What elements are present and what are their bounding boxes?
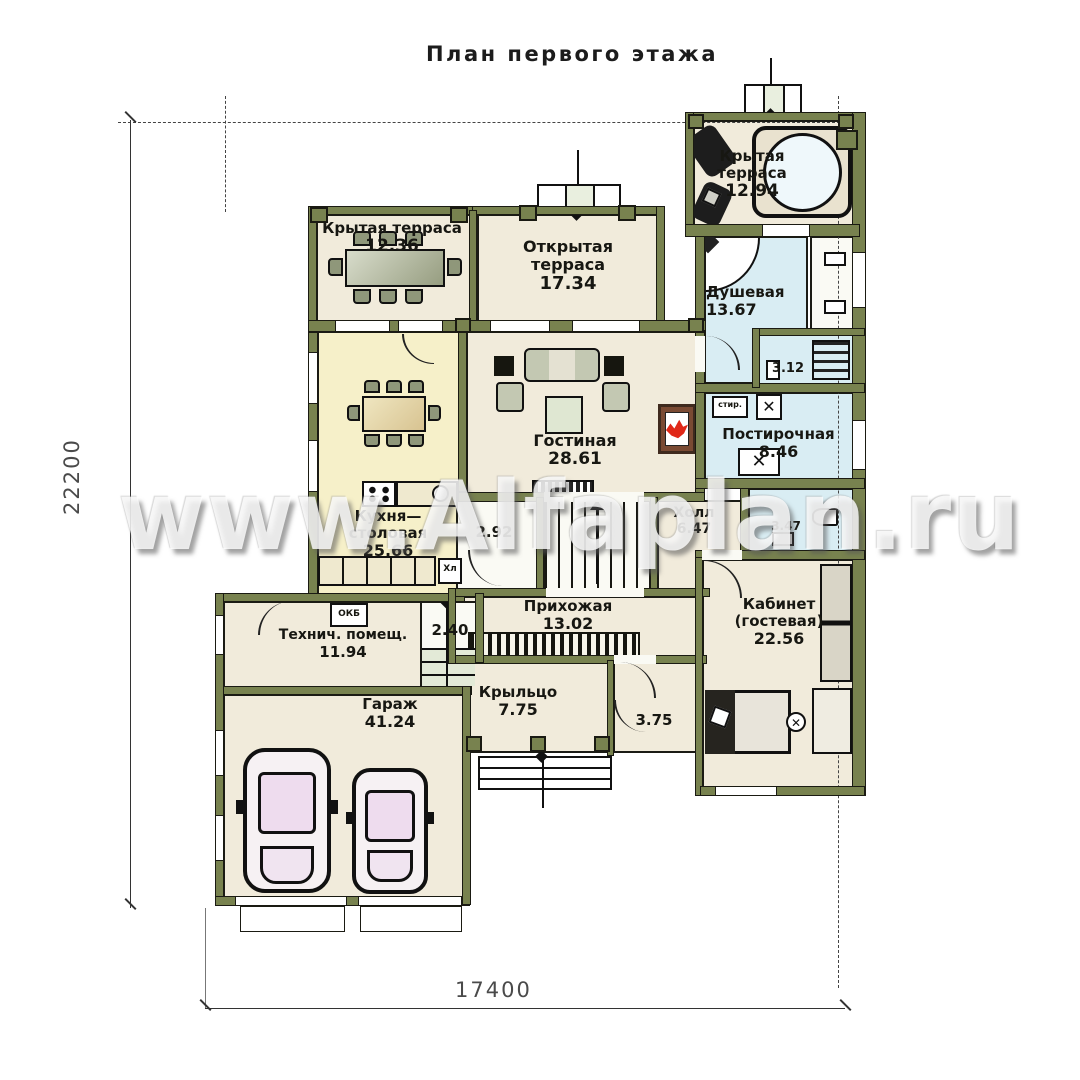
wall-segment [215,686,472,695]
step-axis [770,58,772,84]
room-label-vestibule: 3.75 [626,712,682,729]
chair [353,289,371,304]
washer-label: стир. [712,400,748,409]
door-opening [695,336,705,372]
chair [408,380,424,393]
side-table [494,356,514,376]
wall-segment [695,557,703,796]
chair [428,405,441,421]
watermark: www.Alfaplan.ru [118,462,1021,572]
room-label-laundry: Постирочная 8.46 [706,426,851,461]
page-title: План первого этажа [392,42,752,66]
pier [466,736,482,752]
car-roof [365,790,415,842]
car-mirror [427,812,434,824]
room-label-shower: Душевая 13.67 [700,284,798,319]
room-label-open-terrace: Открытая терраса 17.34 [512,238,624,294]
wardrobe [468,632,640,657]
wall-segment [469,210,477,322]
chimney-block [836,130,858,150]
chair [364,434,380,447]
armchair [602,382,630,412]
armchair [496,382,524,412]
room-label-entry: Прихожая 13.02 [508,598,628,633]
pier [618,205,636,221]
porch-steps [478,756,612,790]
chair [364,380,380,393]
window [308,352,318,404]
window [572,320,640,332]
window [215,815,224,861]
room-label-terrace-tl: Крытая терраса 12.36 [322,220,462,256]
dimension-line-bottom [205,1008,845,1009]
pier [688,318,704,333]
room-shower-lobby [810,236,854,330]
car-hood [260,846,314,884]
step-axis [577,150,579,184]
room-label-porch: Крыльцо 7.75 [470,684,566,719]
coffee-table [545,396,583,434]
door-opening [762,224,810,237]
dimension-tick [839,999,851,1011]
garage-door [235,896,347,906]
entry-steps [744,84,802,114]
floor-plan-canvas: План первого этажа 22200 17400 [0,0,1080,1080]
side-table [604,356,624,376]
chair [408,434,424,447]
dimension-label-bottom: 17400 [455,978,532,1002]
pier [838,114,854,129]
axis-line-top [118,122,840,123]
axis-line-vertical [225,96,226,212]
car-mirror [330,800,338,814]
desk-chair: ✕ [786,712,806,732]
wall-segment [752,328,865,336]
window [852,252,866,308]
desk [812,688,852,754]
pier [519,205,537,221]
wall-segment [215,593,465,602]
garage-door [358,896,462,906]
porch-arrow-line [542,756,544,808]
chair [405,289,423,304]
window [215,615,224,655]
wall-segment [656,206,665,332]
kitchen-table [362,396,426,432]
pier [594,736,610,752]
garage-apron [360,906,462,932]
car-mirror [346,812,353,824]
chair [347,405,360,421]
room-label-steps-inner: 2.40 [426,622,474,639]
sofa [524,348,600,382]
room-label-tech: Технич. помещ. 11.94 [268,628,418,660]
wall-segment [308,206,317,328]
room-label-garage: Гараж 41.24 [340,696,440,731]
car-hood [367,850,413,882]
wall-segment [695,383,865,393]
wall-segment [685,112,694,236]
car-roof [258,772,316,834]
boiler-label: ОКБ [330,609,368,619]
pier [455,318,471,333]
opening [546,588,644,597]
sink [824,300,846,314]
dimension-label-left: 22200 [60,438,84,515]
car-mirror [236,800,244,814]
wall-segment [448,655,707,664]
window [490,320,550,332]
chair [447,258,462,276]
room-label-terrace-tr: Крытая терраса 12.94 [712,148,792,201]
sink [824,252,846,266]
pier [688,114,704,129]
wall-segment [462,686,471,905]
wall-segment [752,328,760,388]
room-label-sauna: 3.12 [764,362,812,377]
chair [386,380,402,393]
pier [530,736,546,752]
chair [386,434,402,447]
chair [379,289,397,304]
extension-line [205,908,206,1008]
garage-apron [240,906,345,932]
window [715,786,777,796]
chair [328,258,343,276]
window [335,320,390,332]
window [215,730,224,776]
sauna-bench [812,340,850,380]
window [398,320,443,332]
room-label-office: Кабинет (гостевая) 22.56 [716,596,842,648]
equipment-box: ✕ [756,394,782,420]
wall-segment [475,593,484,663]
